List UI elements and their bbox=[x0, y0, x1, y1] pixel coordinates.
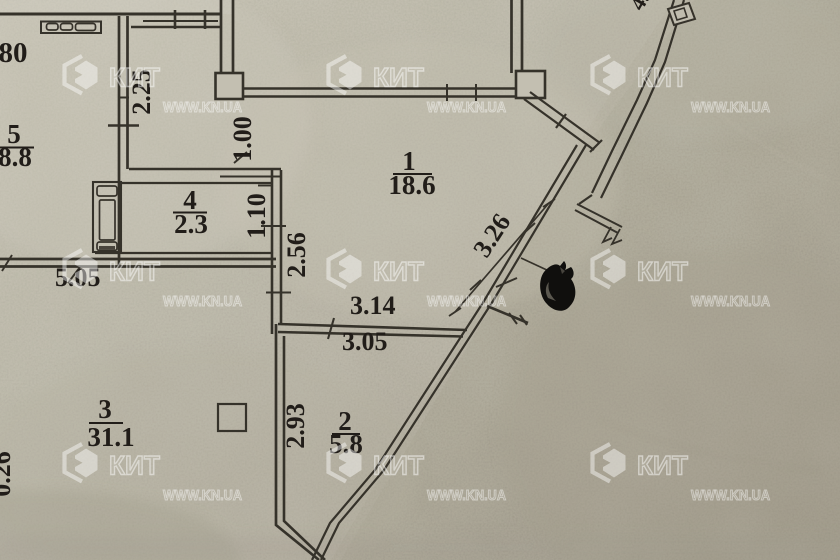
svg-text:31.1: 31.1 bbox=[87, 422, 134, 452]
svg-text:8.8: 8.8 bbox=[0, 142, 32, 172]
svg-text:18.6: 18.6 bbox=[388, 170, 435, 200]
svg-text:3.14: 3.14 bbox=[350, 291, 396, 320]
svg-text:80: 80 bbox=[0, 37, 28, 69]
svg-text:WWW.KN.UA: WWW.KN.UA bbox=[163, 99, 242, 116]
svg-text:2.3: 2.3 bbox=[174, 209, 208, 239]
svg-text:2.93: 2.93 bbox=[281, 403, 310, 449]
svg-text:0.26: 0.26 bbox=[0, 451, 16, 497]
svg-text:КИТ: КИТ bbox=[109, 63, 160, 93]
svg-text:3.05: 3.05 bbox=[342, 327, 388, 356]
svg-text:2.56: 2.56 bbox=[282, 232, 311, 278]
svg-text:1.10: 1.10 bbox=[242, 193, 271, 239]
svg-text:1.00: 1.00 bbox=[228, 116, 257, 162]
svg-text:3: 3 bbox=[98, 394, 112, 424]
